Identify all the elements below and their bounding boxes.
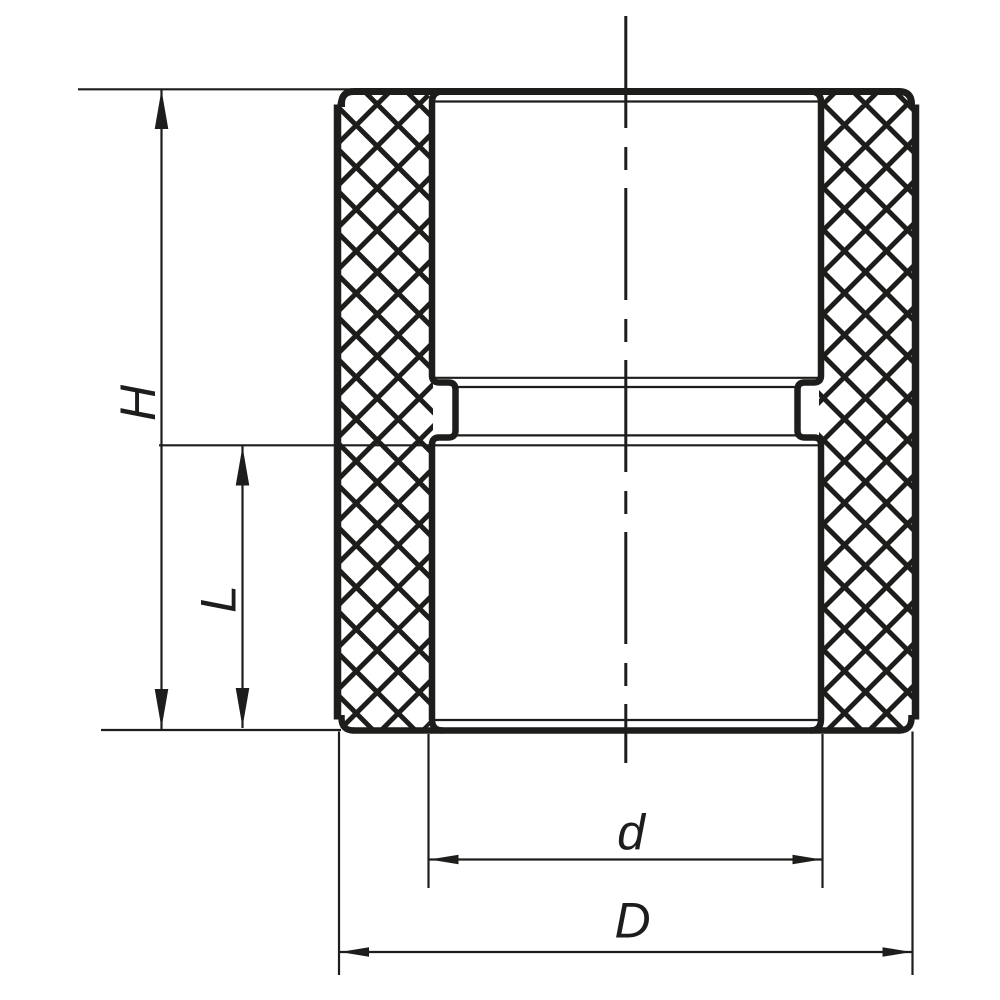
svg-text:d: d — [617, 805, 647, 861]
svg-text:H: H — [110, 384, 166, 421]
svg-text:L: L — [191, 585, 247, 613]
svg-text:D: D — [614, 893, 650, 949]
